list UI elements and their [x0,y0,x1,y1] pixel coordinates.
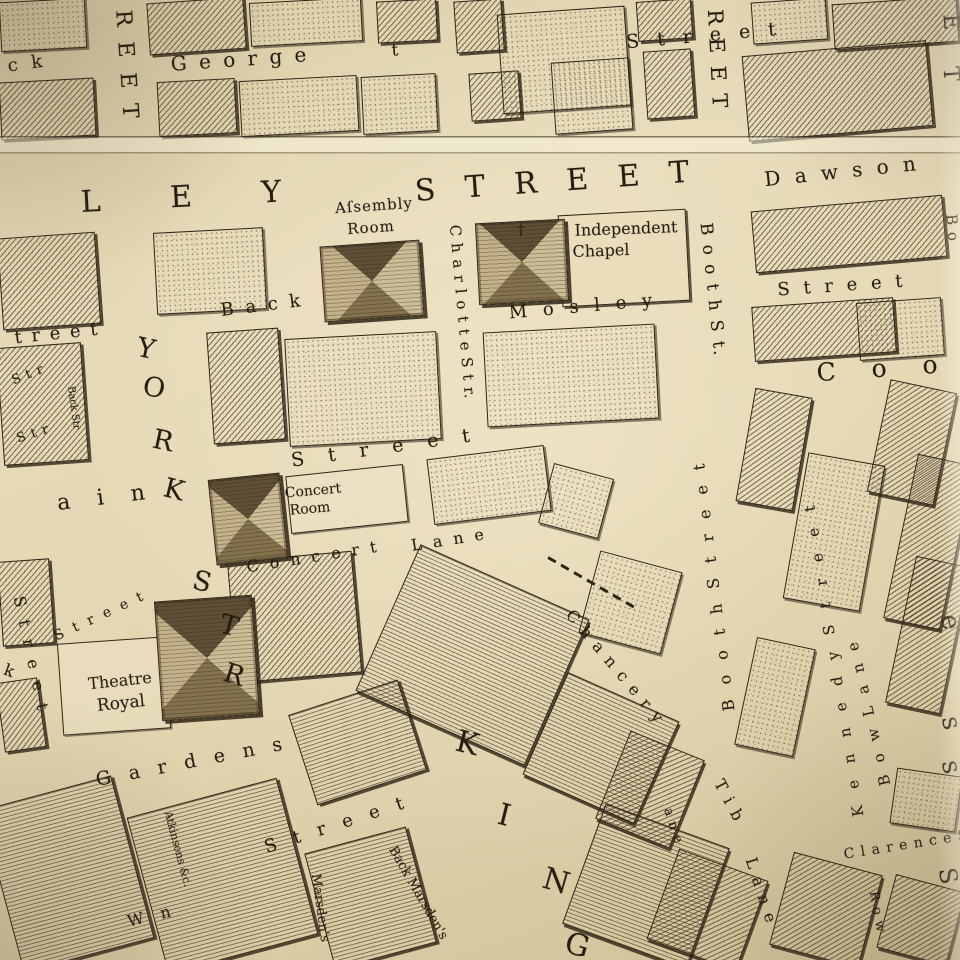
king-letter-g: G [561,928,592,960]
mosley-ley: L E Y [80,176,312,218]
city-block [284,331,441,447]
city-block [889,768,960,833]
york-letter-o: O [141,373,167,403]
chapel-cross: † [517,223,525,238]
assembly-room-line2: Room [347,219,396,237]
row-label: R o w [867,890,887,934]
right-edge-letter-e: E [938,13,960,31]
princess-letter-s1: s [937,714,960,732]
concert-room-line2: Room [289,500,331,517]
fountain-ain: a i n [56,481,156,515]
city-block [0,78,96,141]
independent-chapel-line1: Independent [574,219,677,239]
bond-street-bo: B o [943,213,960,242]
york-letter-r: R [150,426,176,457]
princess-letter-s2: s [937,758,960,776]
king-letter-i: I [495,800,514,832]
city-block [468,70,521,121]
city-block [483,324,660,428]
city-block [742,40,934,142]
street-nw-theatre: S t r e e t [52,589,148,644]
city-block [206,328,286,445]
map-canvas: c kR E E TG e o r g etS t r e e tR E E T… [0,0,960,960]
city-block [426,445,551,525]
city-block [376,0,438,44]
street-vertical-left: R E E T [111,9,141,123]
york-street-letter-s: S [190,567,214,598]
paper-fold-crease [0,136,960,156]
george-street-t: t [391,42,399,59]
city-block [538,463,614,539]
city-block [361,73,439,135]
concert-lane-lane: L a n e [410,526,488,554]
back-fragment: c k [7,52,48,75]
city-block [0,775,154,960]
street-right-row: S t r e e t [777,273,907,300]
independent-chapel-line2: Chapel [572,242,629,260]
right-edge-letter-s3: S [935,866,960,886]
tib-lane-tib: T i b [711,777,747,825]
street-vertical-top-2: R E E T [704,9,730,111]
k-fragment: k [2,662,17,680]
city-block [751,195,948,273]
city-block [734,637,816,757]
charlotte-str: C h a r l o t t e S t r. [447,224,477,400]
city-block [769,852,883,960]
booth-street-lower: B o o t h S t r e e t [691,458,738,712]
right-edge-letter-t: T [938,66,960,83]
mosley-street-big: S T R E E T [414,157,700,207]
city-block [0,232,101,331]
city-block [643,48,696,119]
clarence-street: C l a r e n c e S [843,828,960,862]
city-block [127,778,319,960]
york-letter-y: Y [134,334,157,364]
assembly-room-building [319,240,424,323]
city-block [0,0,87,52]
york-letter-k: K [161,474,187,505]
city-block [249,0,363,47]
city-block [551,57,634,134]
city-block [876,874,960,960]
city-block [157,78,238,137]
theatre-royal-line2: Royal [96,693,146,715]
theatre-royal-building [154,595,260,722]
dawson-street: D a w s o n [763,153,920,189]
king-letter-n: N [539,864,573,900]
assembly-room-line1: Aſsembly [335,196,414,216]
city-block [239,75,360,137]
cooper-street-coo: C o o [816,351,953,385]
booth-st: B o o t h S t. [696,222,727,358]
